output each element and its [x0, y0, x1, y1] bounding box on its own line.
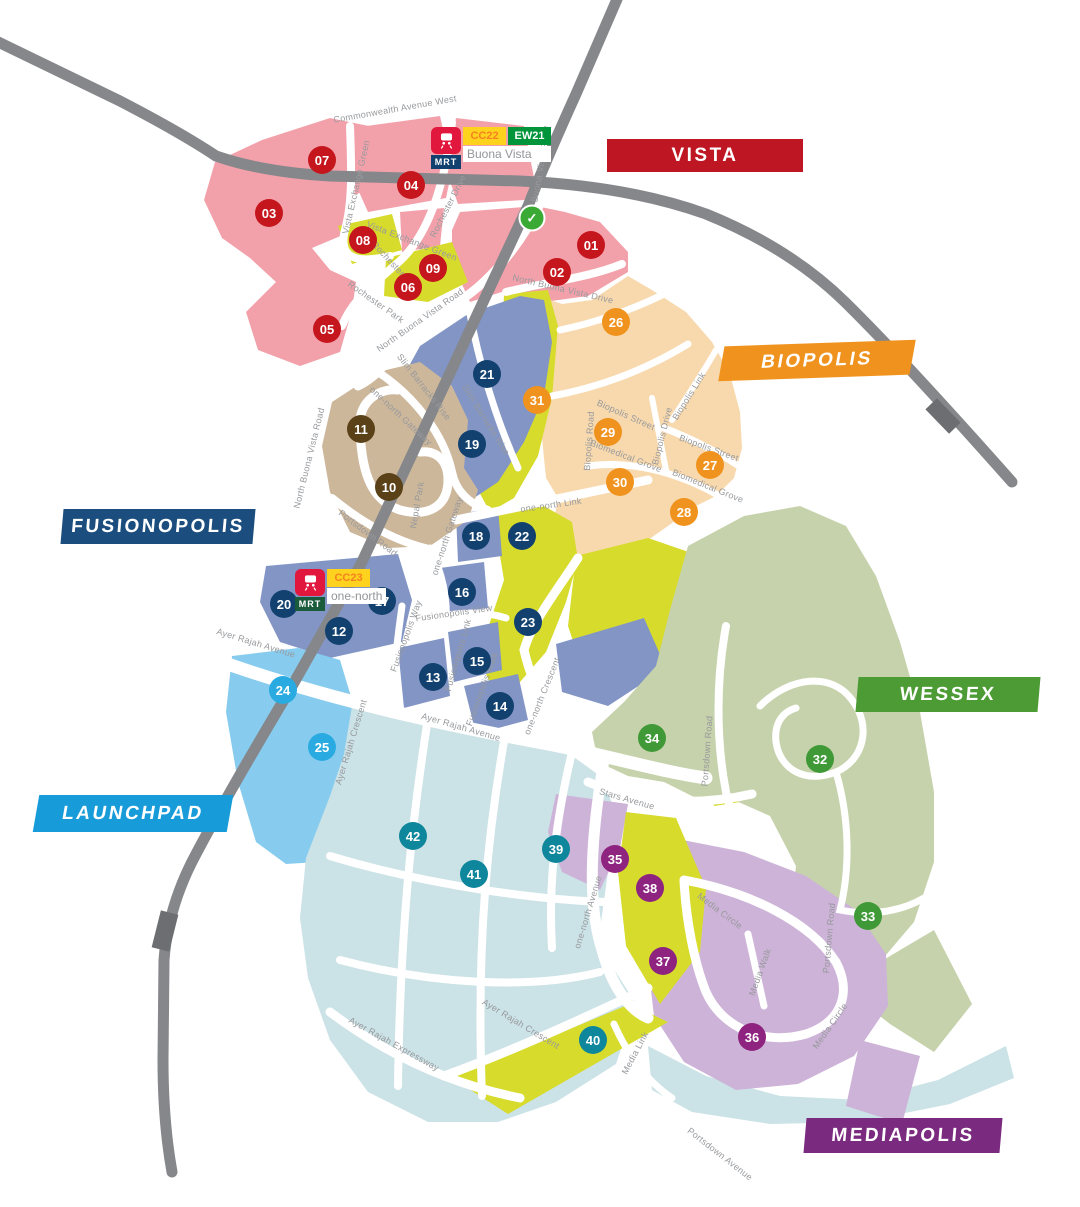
district-banner-wessex: WESSEX — [855, 677, 1040, 712]
mrt-logo: MRT — [295, 569, 325, 611]
map-marker-42[interactable]: 42 — [399, 822, 427, 850]
map-marker-33[interactable]: 33 — [854, 902, 882, 930]
mrt-logo: MRT — [431, 127, 461, 169]
map-marker-28[interactable]: 28 — [670, 498, 698, 526]
line-codes: CC23 — [327, 569, 386, 587]
train-icon-tile — [431, 127, 461, 154]
line-code-badge: EW21 — [508, 127, 551, 145]
map-marker-12[interactable]: 12 — [325, 617, 353, 645]
map-marker-36[interactable]: 36 — [738, 1023, 766, 1051]
map-marker-24[interactable]: 24 — [269, 676, 297, 704]
railway-station-tick — [152, 910, 179, 951]
station-name: one-north — [327, 588, 386, 604]
map-marker-22[interactable]: 22 — [508, 522, 536, 550]
one-north-district-map: Commonwealth Avenue WestVista Exchange G… — [0, 0, 1080, 1207]
map-marker-09[interactable]: 09 — [419, 254, 447, 282]
mrt-tag: MRT — [431, 155, 461, 169]
map-marker-37[interactable]: 37 — [649, 947, 677, 975]
train-icon — [301, 573, 320, 592]
train-icon — [437, 131, 456, 150]
map-marker-16[interactable]: 16 — [448, 578, 476, 606]
station-info: CC22EW21Buona Vista — [463, 127, 551, 162]
map-marker-05[interactable]: 05 — [313, 315, 341, 343]
map-marker-29[interactable]: 29 — [594, 418, 622, 446]
map-marker-25[interactable]: 25 — [308, 733, 336, 761]
map-marker-20[interactable]: 20 — [270, 590, 298, 618]
map-marker-01[interactable]: 01 — [577, 231, 605, 259]
mrt-tag: MRT — [295, 597, 325, 611]
map-marker-23[interactable]: 23 — [514, 608, 542, 636]
line-codes: CC22EW21 — [463, 127, 551, 145]
district-banner-vista: VISTA — [607, 139, 803, 172]
map-marker-32[interactable]: 32 — [806, 745, 834, 773]
map-marker-02[interactable]: 02 — [543, 258, 571, 286]
map-marker-35[interactable]: 35 — [601, 845, 629, 873]
map-marker-40[interactable]: 40 — [579, 1026, 607, 1054]
map-marker-27[interactable]: 27 — [696, 451, 724, 479]
line-code-badge: CC22 — [463, 127, 506, 145]
map-marker-11[interactable]: 11 — [347, 415, 375, 443]
mrt-station-one-north: MRTCC23one-north — [295, 569, 386, 611]
train-icon-tile — [295, 569, 325, 596]
map-marker-34[interactable]: 34 — [638, 724, 666, 752]
mrt-station-buona-vista: MRTCC22EW21Buona Vista — [431, 127, 551, 169]
map-marker-08[interactable]: 08 — [349, 226, 377, 254]
map-marker-10[interactable]: 10 — [375, 473, 403, 501]
line-code-badge: CC23 — [327, 569, 370, 587]
district-banner-mediapolis: MEDIAPOLIS — [803, 1118, 1002, 1153]
map-marker-14[interactable]: 14 — [486, 692, 514, 720]
green-check-icon: ✓ — [519, 205, 546, 232]
map-marker-06[interactable]: 06 — [394, 273, 422, 301]
map-marker-18[interactable]: 18 — [462, 522, 490, 550]
map-marker-21[interactable]: 21 — [473, 360, 501, 388]
map-marker-38[interactable]: 38 — [636, 874, 664, 902]
district-banner-biopolis: BIOPOLIS — [718, 340, 916, 382]
map-marker-39[interactable]: 39 — [542, 835, 570, 863]
map-marker-41[interactable]: 41 — [460, 860, 488, 888]
map-marker-15[interactable]: 15 — [463, 647, 491, 675]
map-marker-03[interactable]: 03 — [255, 199, 283, 227]
map-marker-13[interactable]: 13 — [419, 663, 447, 691]
map-marker-26[interactable]: 26 — [602, 308, 630, 336]
map-marker-07[interactable]: 07 — [308, 146, 336, 174]
station-info: CC23one-north — [327, 569, 386, 604]
district-banner-fusionopolis: FUSIONOPOLIS — [60, 509, 255, 544]
district-banner-launchpad: LAUNCHPAD — [33, 795, 234, 832]
map-marker-30[interactable]: 30 — [606, 468, 634, 496]
station-name: Buona Vista — [463, 146, 551, 162]
map-marker-04[interactable]: 04 — [397, 171, 425, 199]
map-marker-31[interactable]: 31 — [523, 386, 551, 414]
map-marker-19[interactable]: 19 — [458, 430, 486, 458]
